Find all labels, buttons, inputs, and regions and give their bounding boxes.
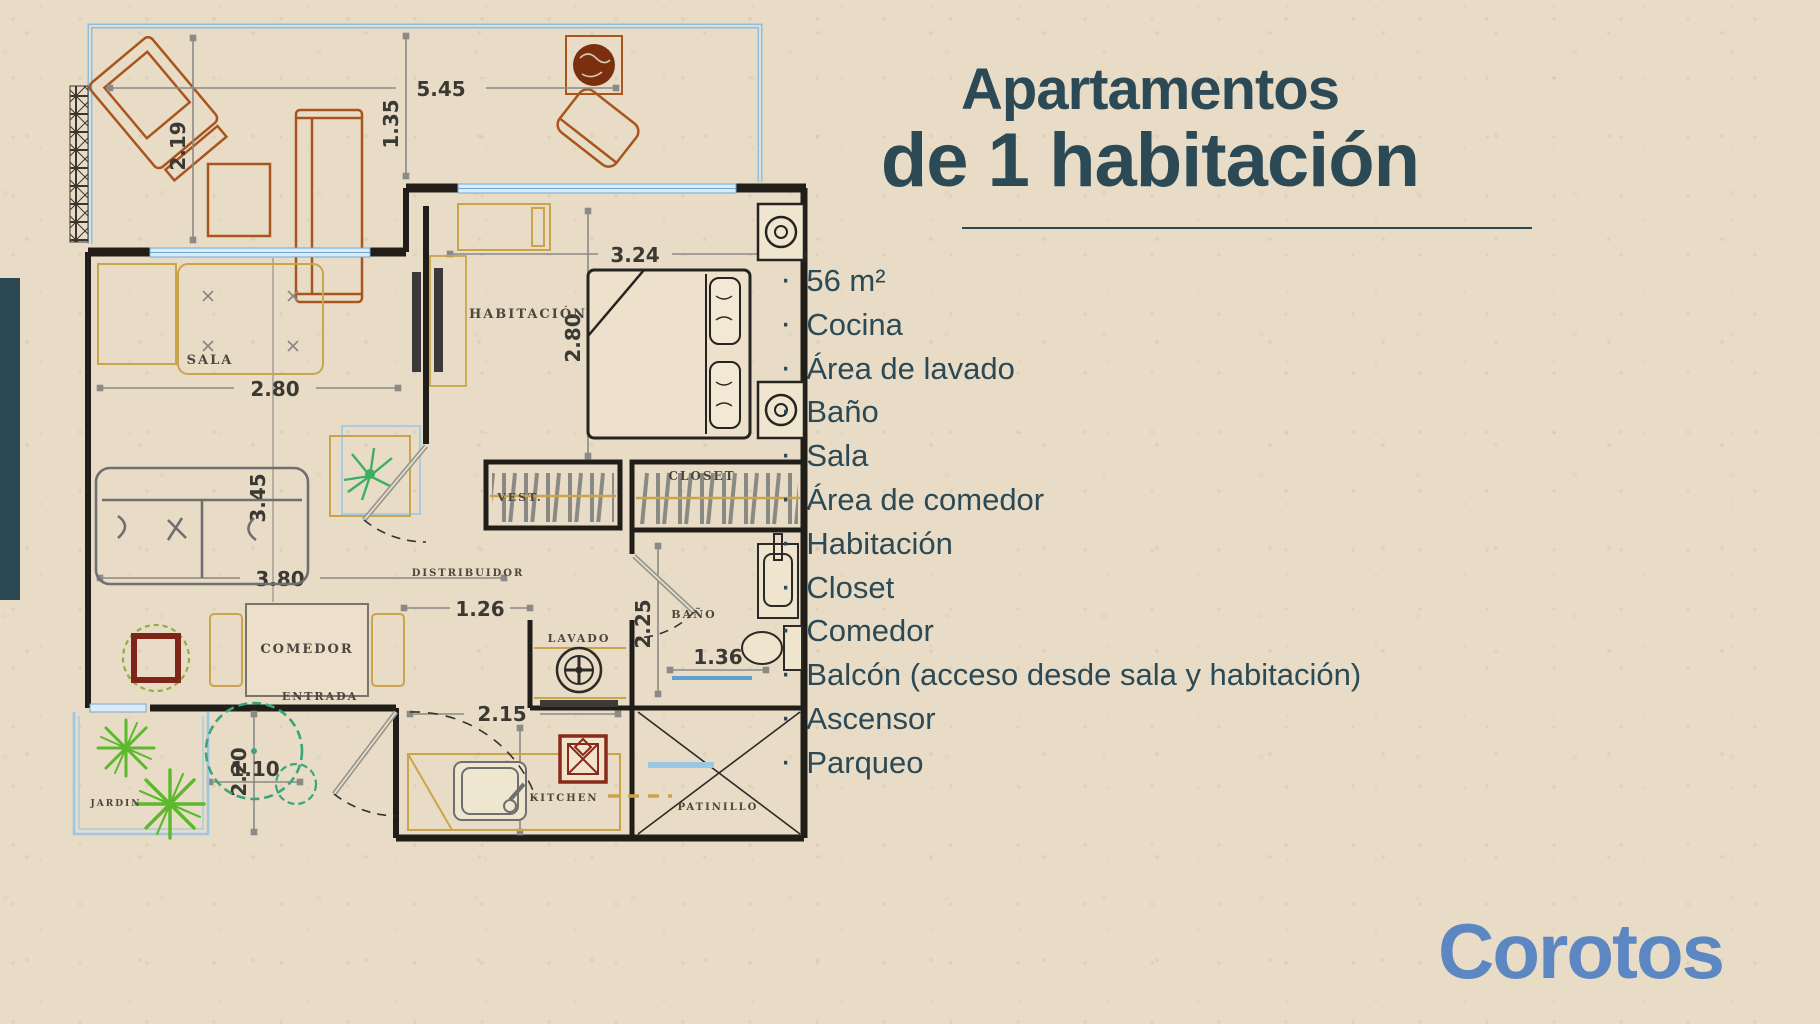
- brand-logo: Corotos: [1438, 906, 1723, 997]
- floor-plan: 5.45 1.35 2.19 3.24 2.80 2.80 3.45: [58, 6, 818, 851]
- dining-chair-right: [372, 614, 404, 686]
- bullet-icon: ·: [780, 258, 791, 302]
- dim-2-19: 2.19: [166, 121, 190, 170]
- feature-list: ·56 m² ·Cocina ·Área de lavado ·Baño ·Sa…: [780, 259, 1361, 785]
- feature-item-label: Área de comedor: [806, 478, 1044, 522]
- bullet-icon: ·: [780, 521, 791, 565]
- dim-1-26: 1.26: [455, 597, 504, 621]
- palm-2: [136, 770, 204, 838]
- room-label-patinillo: PATINILLO: [678, 802, 759, 813]
- dim-1-36: 1.36: [693, 645, 742, 669]
- balcony-chair: [554, 85, 643, 170]
- dining-chair-left: [210, 614, 242, 686]
- bullet-icon: ·: [780, 696, 791, 740]
- balcony-lounge-chair: [88, 35, 232, 184]
- bullet-icon: ·: [780, 346, 791, 390]
- bedroom-dresser: [458, 204, 550, 250]
- room-label-lavado: LAVADO: [548, 632, 611, 645]
- feature-item-label: Parqueo: [806, 741, 923, 785]
- feature-item: ·Balcón (acceso desde sala y habitación): [780, 653, 1361, 697]
- feature-item-label: 56 m²: [806, 259, 885, 303]
- bullet-icon: ·: [780, 740, 791, 784]
- dim-1-35: 1.35: [379, 99, 403, 148]
- page-title-line2: de 1 habitación: [760, 121, 1540, 201]
- dim-2-15: 2.15: [477, 702, 526, 726]
- dim-3-24: 3.24: [610, 243, 659, 267]
- bullet-icon: ·: [780, 608, 791, 652]
- room-label-jardin: JARDIN: [90, 799, 142, 809]
- tv-sala: [412, 272, 421, 372]
- room-label-comedor: COMEDOR: [260, 642, 353, 657]
- palm-1: [98, 720, 154, 776]
- feature-item-label: Baño: [806, 390, 878, 434]
- room-label-sala: SALA: [187, 353, 234, 368]
- feature-item-label: Cocina: [806, 303, 903, 347]
- room-label-entrada: ENTRADA: [282, 690, 358, 703]
- feature-item-label: Sala: [806, 434, 868, 478]
- left-accent-bar: [0, 278, 20, 600]
- feature-item-label: Habitación: [806, 522, 952, 566]
- kitchen-sink: [454, 762, 526, 820]
- room-label-distribuidor: DISTRIBUIDOR: [412, 568, 525, 579]
- bullet-icon: ·: [780, 302, 791, 346]
- bed: [588, 270, 750, 438]
- garden: [74, 703, 316, 838]
- feature-item: ·Parqueo: [780, 741, 1361, 785]
- balcony-table: [208, 164, 270, 236]
- feature-item: ·Closet: [780, 566, 1361, 610]
- feature-item: ·Baño: [780, 390, 1361, 434]
- lattice-strip: [70, 86, 88, 242]
- feature-item: ·56 m²: [780, 259, 1361, 303]
- dim-2-80-sala: 2.80: [250, 377, 299, 401]
- room-label-vest: VEST.: [496, 491, 542, 504]
- bullet-icon: ·: [780, 565, 791, 609]
- feature-item: ·Comedor: [780, 609, 1361, 653]
- dim-2-25: 2.25: [631, 599, 655, 648]
- balcony-sofa: [296, 110, 362, 302]
- dim-5-45: 5.45: [416, 77, 465, 101]
- feature-item-label: Balcón (acceso desde sala y habitación): [806, 653, 1361, 697]
- dim-1-10: 1.10: [230, 757, 279, 781]
- bullet-icon: ·: [780, 477, 791, 521]
- stove: [560, 736, 606, 782]
- tv-habitacion: [434, 268, 443, 372]
- title-underline: [962, 227, 1532, 229]
- feature-item: ·Área de comedor: [780, 478, 1361, 522]
- dim-3-80: 3.80: [255, 567, 304, 591]
- title-block: Apartamentos de 1 habitación: [760, 60, 1540, 201]
- bullet-icon: ·: [780, 652, 791, 696]
- bullet-icon: ·: [780, 389, 791, 433]
- feature-item: ·Habitación: [780, 522, 1361, 566]
- room-label-habitacion: HABITACIÓN: [469, 305, 587, 322]
- room-label-kitchen: KITCHEN: [530, 793, 599, 804]
- feature-item-label: Closet: [806, 566, 894, 610]
- flyer-canvas: 5.45 1.35 2.19 3.24 2.80 2.80 3.45: [0, 0, 1820, 1024]
- feature-item: ·Cocina: [780, 303, 1361, 347]
- washer: [534, 648, 626, 707]
- dim-3-45: 3.45: [246, 473, 270, 522]
- feature-item: ·Sala: [780, 434, 1361, 478]
- page-title-line1: Apartamentos: [760, 60, 1540, 121]
- red-planter: [134, 636, 178, 680]
- nightstand-top: [758, 204, 804, 260]
- feature-item-label: Área de lavado: [806, 347, 1015, 391]
- patinillo-cross: [638, 712, 800, 834]
- bullet-icon: ·: [780, 433, 791, 477]
- feature-item-label: Ascensor: [806, 697, 935, 741]
- sala-cabinet: [98, 264, 176, 364]
- feature-item: ·Ascensor: [780, 697, 1361, 741]
- room-label-closet: CLOSET: [668, 469, 735, 483]
- furniture: [74, 204, 804, 838]
- feature-item: ·Área de lavado: [780, 347, 1361, 391]
- feature-item-label: Comedor: [806, 609, 934, 653]
- room-label-bano: BAÑO: [671, 607, 716, 621]
